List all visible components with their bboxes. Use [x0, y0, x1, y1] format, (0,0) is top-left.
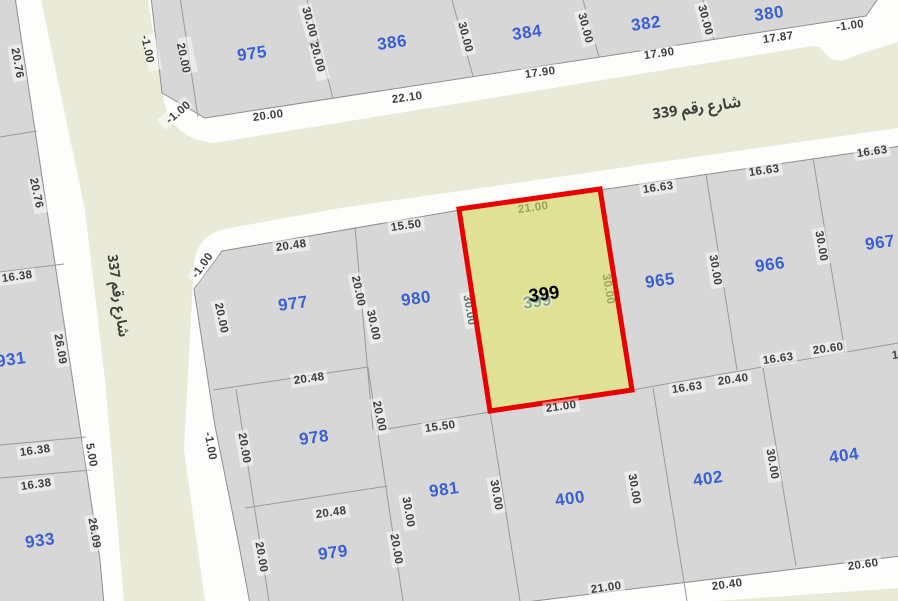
svg-text:399: 399: [527, 281, 560, 306]
